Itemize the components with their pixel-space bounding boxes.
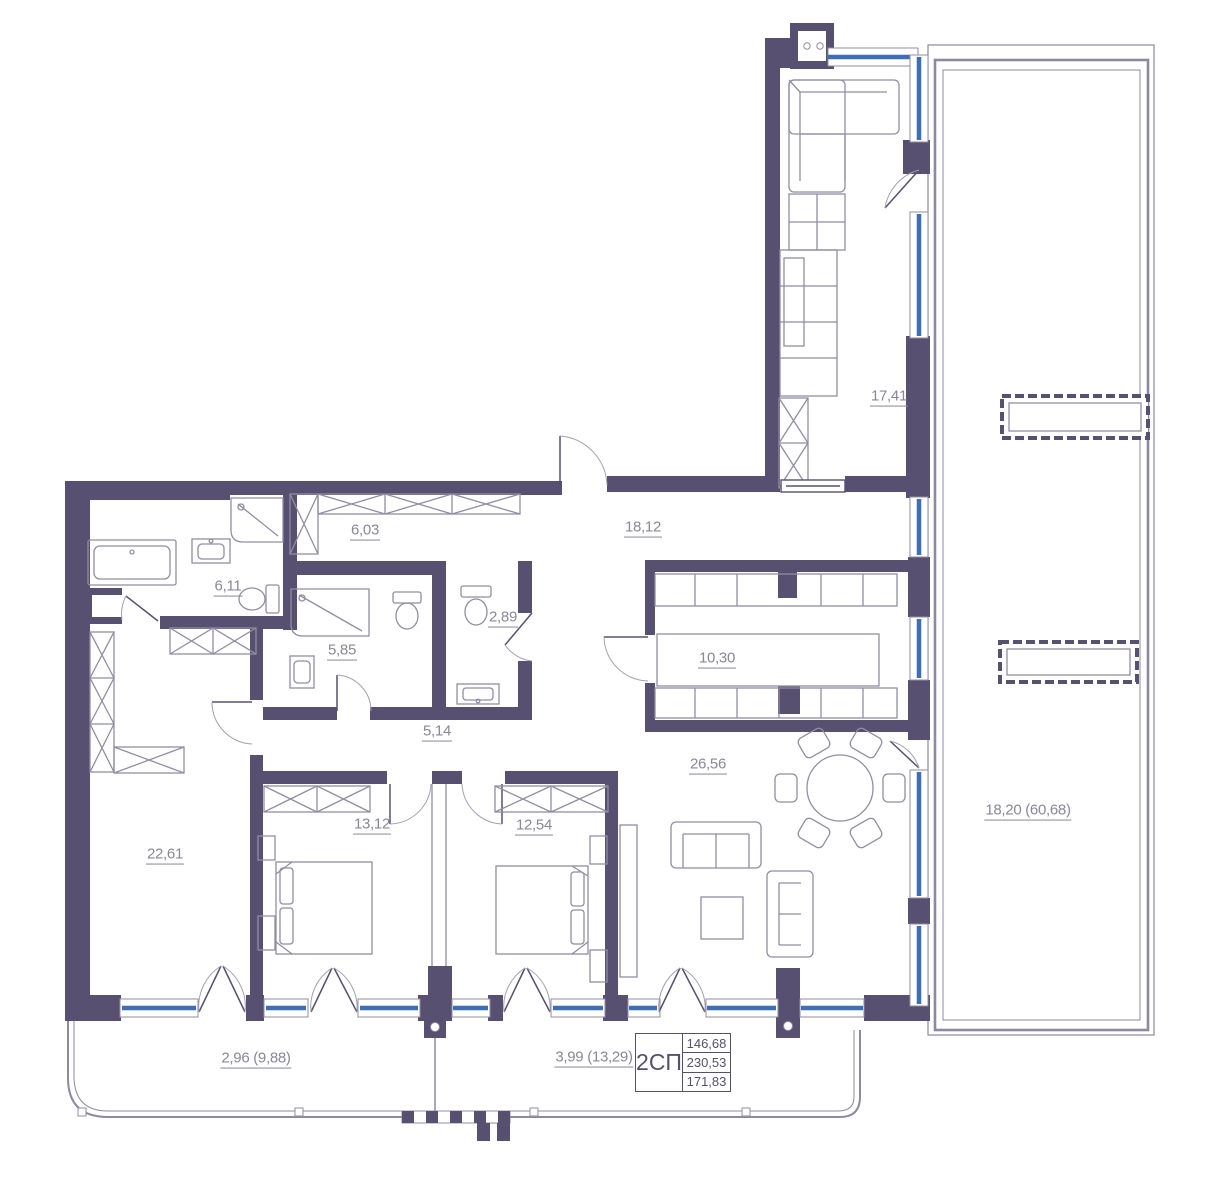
tv-console [620,825,637,977]
room-label-bathroom: 6,11 [214,578,243,597]
kitchen-table [789,194,845,250]
room-label-hall-wardrobe: 6,03 [350,522,380,541]
bedroom2-wardrobe [264,786,370,812]
closet-shelving [655,574,897,718]
entrance-door [560,436,607,487]
room-label-kitchen-living: 17,41 [870,388,908,407]
floor-plan-drawing [0,0,1217,1187]
bathroom-shower [231,498,283,542]
furniture [88,80,905,982]
room-label-balcony-left: 2,96 (9,88) [220,1050,291,1069]
room-label-hallway: 5,14 [422,723,452,742]
balcony-railing [68,1014,860,1141]
shower-room-toilet [393,592,421,629]
floor-plan: 17,41 18,12 6,03 6,11 5,85 2,89 5,14 10,… [0,0,1217,1187]
title-block: 2СП 146,68 230,53 171,83 [635,1033,731,1092]
balcony-service-strip [402,1111,510,1141]
area-value-3: 171,83 [683,1073,730,1091]
room-label-shower-room: 5,85 [327,642,357,661]
terrace-railing [928,45,1154,1035]
bathtub [88,540,176,585]
room-label-bedroom-master: 22,61 [146,846,184,865]
room-label-bedroom-3: 12,54 [515,817,553,836]
vent-shaft [790,23,834,69]
unit-type: 2СП [636,1034,683,1091]
area-value-2: 230,53 [683,1053,730,1072]
bedroom3-bed [496,836,607,982]
hall-wardrobe-cabinets [290,494,520,554]
bedroom2-bed [258,836,372,954]
room-label-corridor: 18,12 [624,519,662,538]
room-label-wc: 2,89 [488,609,518,628]
bathroom-sink [192,539,230,563]
shower-room-sink [290,656,314,688]
wc-sink [457,684,499,704]
terrace-planter-1 [1002,396,1148,438]
bathroom-toilet [239,585,279,613]
room-label-balcony-right: 3,99 (13,29) [554,1049,633,1068]
kitchen-sofa [789,80,899,192]
room-label-living-room: 26,56 [689,756,727,775]
shower-cabin [291,589,369,636]
room-label-terrace: 18,20 (60,68) [984,802,1071,821]
living-sofa-1 [671,822,761,868]
kitchen-pass-through [781,480,845,492]
terrace-planter-2 [1000,642,1137,682]
room-label-bedroom-2: 13,12 [353,816,391,835]
bedroom3-wardrobe [495,786,608,812]
master-wardrobes [90,628,256,773]
coffee-table [701,897,743,939]
room-label-walk-in-closet: 10,30 [698,650,736,669]
living-sofa-2 [767,871,813,957]
wc-toilet [461,586,491,625]
dining-table [775,726,905,849]
kitchen-cabinets [779,250,837,488]
area-value-1: 146,68 [683,1034,730,1053]
